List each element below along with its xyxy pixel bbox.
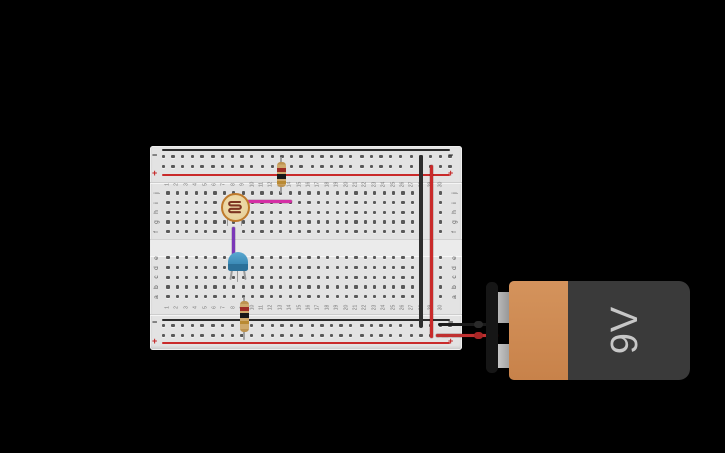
- breadboard-hole[interactable]: [204, 220, 207, 223]
- breadboard-hole[interactable]: [191, 334, 194, 337]
- breadboard-hole[interactable]: [231, 324, 234, 327]
- breadboard-hole[interactable]: [370, 155, 373, 158]
- breadboard-hole[interactable]: [289, 220, 292, 223]
- breadboard-hole[interactable]: [250, 165, 253, 168]
- breadboard-hole[interactable]: [326, 285, 329, 288]
- breadboard-hole[interactable]: [298, 295, 301, 298]
- breadboard-hole[interactable]: [221, 165, 224, 168]
- breadboard-hole[interactable]: [349, 155, 352, 158]
- breadboard-hole[interactable]: [232, 295, 235, 298]
- breadboard-hole[interactable]: [411, 295, 414, 298]
- breadboard-hole[interactable]: [411, 220, 414, 223]
- breadboard-hole[interactable]: [439, 211, 442, 214]
- breadboard-hole[interactable]: [410, 324, 413, 327]
- breadboard-hole[interactable]: [379, 334, 382, 337]
- breadboard-hole[interactable]: [307, 295, 310, 298]
- breadboard-hole[interactable]: [399, 155, 402, 158]
- breadboard-hole[interactable]: [410, 165, 413, 168]
- breadboard-hole[interactable]: [373, 230, 376, 233]
- breadboard-hole[interactable]: [251, 295, 254, 298]
- breadboard-hole[interactable]: [204, 191, 207, 194]
- breadboard-hole[interactable]: [439, 165, 442, 168]
- breadboard-hole[interactable]: [339, 334, 342, 337]
- breadboard-hole[interactable]: [317, 230, 320, 233]
- breadboard-hole[interactable]: [307, 191, 310, 194]
- breadboard-hole[interactable]: [279, 230, 282, 233]
- breadboard-hole[interactable]: [213, 266, 216, 269]
- breadboard-hole[interactable]: [399, 324, 402, 327]
- breadboard-hole[interactable]: [171, 165, 174, 168]
- breadboard-hole[interactable]: [166, 285, 169, 288]
- breadboard-hole[interactable]: [383, 211, 386, 214]
- breadboard-hole[interactable]: [364, 285, 367, 288]
- breadboard-hole[interactable]: [360, 155, 363, 158]
- breadboard-hole[interactable]: [166, 220, 169, 223]
- breadboard-hole[interactable]: [439, 220, 442, 223]
- breadboard-hole[interactable]: [290, 165, 293, 168]
- breadboard-hole[interactable]: [411, 256, 414, 259]
- breadboard-hole[interactable]: [373, 266, 376, 269]
- breadboard-hole[interactable]: [298, 211, 301, 214]
- breadboard-hole[interactable]: [360, 324, 363, 327]
- breadboard-hole[interactable]: [260, 220, 263, 223]
- breadboard-hole[interactable]: [181, 334, 184, 337]
- breadboard-hole[interactable]: [317, 211, 320, 214]
- breadboard-hole[interactable]: [270, 211, 273, 214]
- breadboard-hole[interactable]: [166, 191, 169, 194]
- breadboard-hole[interactable]: [345, 256, 348, 259]
- breadboard-hole[interactable]: [213, 276, 216, 279]
- breadboard-hole[interactable]: [195, 266, 198, 269]
- breadboard-hole[interactable]: [195, 276, 198, 279]
- breadboard-hole[interactable]: [251, 276, 254, 279]
- breadboard-hole[interactable]: [419, 334, 422, 337]
- breadboard-hole[interactable]: [392, 266, 395, 269]
- breadboard-hole[interactable]: [439, 285, 442, 288]
- breadboard-hole[interactable]: [279, 256, 282, 259]
- breadboard-hole[interactable]: [185, 256, 188, 259]
- breadboard-hole[interactable]: [191, 155, 194, 158]
- breadboard-hole[interactable]: [240, 155, 243, 158]
- breadboard-hole[interactable]: [364, 266, 367, 269]
- breadboard-hole[interactable]: [401, 256, 404, 259]
- breadboard-hole[interactable]: [200, 334, 203, 337]
- breadboard-hole[interactable]: [223, 295, 226, 298]
- breadboard-hole[interactable]: [401, 276, 404, 279]
- breadboard-hole[interactable]: [336, 276, 339, 279]
- breadboard-hole[interactable]: [336, 285, 339, 288]
- breadboard-hole[interactable]: [311, 155, 314, 158]
- breadboard-hole[interactable]: [298, 230, 301, 233]
- breadboard-hole[interactable]: [185, 211, 188, 214]
- breadboard-hole[interactable]: [223, 285, 226, 288]
- breadboard-hole[interactable]: [373, 191, 376, 194]
- breadboard-hole[interactable]: [411, 191, 414, 194]
- breadboard-hole[interactable]: [370, 324, 373, 327]
- breadboard-hole[interactable]: [181, 155, 184, 158]
- breadboard-hole[interactable]: [176, 285, 179, 288]
- breadboard-hole[interactable]: [299, 324, 302, 327]
- breadboard-hole[interactable]: [298, 256, 301, 259]
- breadboard-hole[interactable]: [290, 324, 293, 327]
- breadboard-hole[interactable]: [383, 285, 386, 288]
- breadboard-hole[interactable]: [383, 266, 386, 269]
- breadboard-hole[interactable]: [354, 266, 357, 269]
- breadboard-hole[interactable]: [213, 191, 216, 194]
- breadboard-hole[interactable]: [213, 285, 216, 288]
- breadboard-hole[interactable]: [240, 165, 243, 168]
- breadboard-hole[interactable]: [439, 191, 442, 194]
- breadboard-hole[interactable]: [289, 256, 292, 259]
- breadboard-hole[interactable]: [373, 276, 376, 279]
- breadboard-hole[interactable]: [251, 191, 254, 194]
- breadboard-hole[interactable]: [439, 266, 442, 269]
- breadboard-hole[interactable]: [345, 285, 348, 288]
- breadboard-hole[interactable]: [345, 230, 348, 233]
- breadboard-hole[interactable]: [185, 295, 188, 298]
- breadboard-hole[interactable]: [392, 230, 395, 233]
- breadboard-hole[interactable]: [213, 211, 216, 214]
- breadboard-hole[interactable]: [411, 276, 414, 279]
- breadboard-hole[interactable]: [260, 256, 263, 259]
- breadboard-hole[interactable]: [231, 334, 234, 337]
- breadboard-hole[interactable]: [307, 220, 310, 223]
- breadboard-hole[interactable]: [326, 256, 329, 259]
- breadboard-hole[interactable]: [162, 334, 165, 337]
- breadboard-hole[interactable]: [326, 295, 329, 298]
- breadboard-hole[interactable]: [299, 334, 302, 337]
- breadboard-hole[interactable]: [307, 256, 310, 259]
- breadboard-hole[interactable]: [279, 285, 282, 288]
- breadboard-hole[interactable]: [223, 230, 226, 233]
- breadboard-hole[interactable]: [223, 256, 226, 259]
- breadboard-hole[interactable]: [389, 324, 392, 327]
- breadboard-hole[interactable]: [401, 220, 404, 223]
- breadboard-hole[interactable]: [401, 201, 404, 204]
- breadboard-hole[interactable]: [392, 295, 395, 298]
- circuit-canvas[interactable]: 1122334455667788991010111112121313141415…: [0, 0, 725, 453]
- breadboard-hole[interactable]: [429, 155, 432, 158]
- breadboard-hole[interactable]: [439, 230, 442, 233]
- breadboard-hole[interactable]: [204, 266, 207, 269]
- breadboard-hole[interactable]: [383, 276, 386, 279]
- breadboard-hole[interactable]: [251, 220, 254, 223]
- breadboard-hole[interactable]: [392, 220, 395, 223]
- breadboard-hole[interactable]: [354, 211, 357, 214]
- breadboard-hole[interactable]: [279, 211, 282, 214]
- breadboard-hole[interactable]: [251, 256, 254, 259]
- breadboard-hole[interactable]: [171, 155, 174, 158]
- breadboard-hole[interactable]: [336, 191, 339, 194]
- breadboard-hole[interactable]: [373, 220, 376, 223]
- breadboard-hole[interactable]: [223, 276, 226, 279]
- breadboard-hole[interactable]: [251, 266, 254, 269]
- breadboard-hole[interactable]: [326, 266, 329, 269]
- breadboard-hole[interactable]: [339, 165, 342, 168]
- breadboard-hole[interactable]: [261, 324, 264, 327]
- breadboard-hole[interactable]: [383, 295, 386, 298]
- breadboard-hole[interactable]: [401, 191, 404, 194]
- breadboard-hole[interactable]: [223, 220, 226, 223]
- breadboard-hole[interactable]: [307, 266, 310, 269]
- breadboard-hole[interactable]: [401, 295, 404, 298]
- breadboard-hole[interactable]: [191, 165, 194, 168]
- breadboard-hole[interactable]: [204, 295, 207, 298]
- breadboard-hole[interactable]: [213, 256, 216, 259]
- breadboard-hole[interactable]: [176, 256, 179, 259]
- breadboard-hole[interactable]: [439, 295, 442, 298]
- breadboard-hole[interactable]: [261, 165, 264, 168]
- breadboard-hole[interactable]: [345, 201, 348, 204]
- breadboard-hole[interactable]: [383, 201, 386, 204]
- breadboard-hole[interactable]: [330, 155, 333, 158]
- breadboard-hole[interactable]: [166, 266, 169, 269]
- breadboard-hole[interactable]: [221, 334, 224, 337]
- breadboard-hole[interactable]: [290, 155, 293, 158]
- breadboard-hole[interactable]: [364, 276, 367, 279]
- breadboard-hole[interactable]: [326, 201, 329, 204]
- breadboard-hole[interactable]: [232, 285, 235, 288]
- breadboard-hole[interactable]: [204, 211, 207, 214]
- breadboard-hole[interactable]: [330, 324, 333, 327]
- breadboard-hole[interactable]: [270, 285, 273, 288]
- breadboard-hole[interactable]: [317, 201, 320, 204]
- wire-positive-rail-jumper[interactable]: [430, 165, 434, 338]
- breadboard-hole[interactable]: [326, 220, 329, 223]
- breadboard-hole[interactable]: [373, 211, 376, 214]
- breadboard-hole[interactable]: [354, 191, 357, 194]
- breadboard-hole[interactable]: [439, 201, 442, 204]
- breadboard-hole[interactable]: [364, 230, 367, 233]
- breadboard-hole[interactable]: [345, 220, 348, 223]
- breadboard-hole[interactable]: [279, 220, 282, 223]
- breadboard-hole[interactable]: [383, 220, 386, 223]
- breadboard-hole[interactable]: [354, 256, 357, 259]
- breadboard-hole[interactable]: [298, 201, 301, 204]
- breadboard-hole[interactable]: [176, 201, 179, 204]
- breadboard-hole[interactable]: [213, 220, 216, 223]
- breadboard-hole[interactable]: [360, 334, 363, 337]
- breadboard-hole[interactable]: [320, 334, 323, 337]
- breadboard-hole[interactable]: [260, 230, 263, 233]
- breadboard-hole[interactable]: [195, 230, 198, 233]
- breadboard-hole[interactable]: [298, 276, 301, 279]
- breadboard-hole[interactable]: [399, 165, 402, 168]
- breadboard-hole[interactable]: [389, 155, 392, 158]
- breadboard-hole[interactable]: [307, 276, 310, 279]
- breadboard-hole[interactable]: [411, 201, 414, 204]
- breadboard-hole[interactable]: [307, 230, 310, 233]
- breadboard-hole[interactable]: [307, 201, 310, 204]
- breadboard-hole[interactable]: [195, 256, 198, 259]
- breadboard-hole[interactable]: [162, 155, 165, 158]
- breadboard-hole[interactable]: [162, 165, 165, 168]
- breadboard-hole[interactable]: [289, 191, 292, 194]
- breadboard-hole[interactable]: [354, 230, 357, 233]
- breadboard-hole[interactable]: [260, 285, 263, 288]
- breadboard-hole[interactable]: [185, 276, 188, 279]
- breadboard-hole[interactable]: [211, 165, 214, 168]
- breadboard-hole[interactable]: [439, 276, 442, 279]
- breadboard-hole[interactable]: [191, 324, 194, 327]
- breadboard-hole[interactable]: [279, 295, 282, 298]
- breadboard-hole[interactable]: [349, 324, 352, 327]
- breadboard-hole[interactable]: [392, 201, 395, 204]
- breadboard-hole[interactable]: [439, 155, 442, 158]
- breadboard-hole[interactable]: [213, 230, 216, 233]
- breadboard-hole[interactable]: [411, 230, 414, 233]
- breadboard-hole[interactable]: [370, 334, 373, 337]
- breadboard-hole[interactable]: [260, 211, 263, 214]
- breadboard-hole[interactable]: [171, 334, 174, 337]
- breadboard-hole[interactable]: [383, 256, 386, 259]
- breadboard-hole[interactable]: [270, 230, 273, 233]
- breadboard-hole[interactable]: [320, 324, 323, 327]
- breadboard-hole[interactable]: [364, 256, 367, 259]
- breadboard-hole[interactable]: [298, 220, 301, 223]
- breadboard-hole[interactable]: [260, 276, 263, 279]
- breadboard-hole[interactable]: [345, 211, 348, 214]
- breadboard-hole[interactable]: [271, 165, 274, 168]
- breadboard-hole[interactable]: [354, 285, 357, 288]
- breadboard-hole[interactable]: [364, 211, 367, 214]
- breadboard-hole[interactable]: [211, 334, 214, 337]
- breadboard-hole[interactable]: [411, 285, 414, 288]
- breadboard-hole[interactable]: [211, 155, 214, 158]
- breadboard-hole[interactable]: [271, 155, 274, 158]
- breadboard-hole[interactable]: [317, 220, 320, 223]
- breadboard-hole[interactable]: [364, 295, 367, 298]
- breadboard-hole[interactable]: [270, 276, 273, 279]
- breadboard-hole[interactable]: [411, 266, 414, 269]
- breadboard-hole[interactable]: [261, 155, 264, 158]
- wire-ldr-output-pink[interactable]: [247, 200, 293, 204]
- breadboard-hole[interactable]: [176, 220, 179, 223]
- breadboard-hole[interactable]: [185, 266, 188, 269]
- breadboard-hole[interactable]: [166, 201, 169, 204]
- breadboard-hole[interactable]: [166, 276, 169, 279]
- breadboard-hole[interactable]: [176, 295, 179, 298]
- breadboard-hole[interactable]: [204, 230, 207, 233]
- breadboard-hole[interactable]: [364, 191, 367, 194]
- breadboard-hole[interactable]: [185, 220, 188, 223]
- breadboard-hole[interactable]: [364, 201, 367, 204]
- breadboard-hole[interactable]: [439, 256, 442, 259]
- breadboard-hole[interactable]: [171, 324, 174, 327]
- breadboard-hole[interactable]: [336, 295, 339, 298]
- breadboard-hole[interactable]: [279, 276, 282, 279]
- breadboard-hole[interactable]: [185, 201, 188, 204]
- breadboard-hole[interactable]: [204, 276, 207, 279]
- breadboard-hole[interactable]: [354, 276, 357, 279]
- breadboard-hole[interactable]: [370, 165, 373, 168]
- breadboard-hole[interactable]: [392, 211, 395, 214]
- breadboard-hole[interactable]: [250, 334, 253, 337]
- breadboard-hole[interactable]: [251, 285, 254, 288]
- breadboard-hole[interactable]: [289, 285, 292, 288]
- breadboard-hole[interactable]: [299, 165, 302, 168]
- breadboard-hole[interactable]: [232, 276, 235, 279]
- breadboard-hole[interactable]: [181, 324, 184, 327]
- breadboard-hole[interactable]: [260, 266, 263, 269]
- breadboard-hole[interactable]: [354, 295, 357, 298]
- breadboard-hole[interactable]: [410, 155, 413, 158]
- breadboard-hole[interactable]: [326, 191, 329, 194]
- breadboard-hole[interactable]: [373, 201, 376, 204]
- breadboard-hole[interactable]: [339, 155, 342, 158]
- breadboard-hole[interactable]: [251, 211, 254, 214]
- breadboard-hole[interactable]: [317, 191, 320, 194]
- breadboard-hole[interactable]: [213, 295, 216, 298]
- breadboard-hole[interactable]: [360, 165, 363, 168]
- breadboard-hole[interactable]: [336, 256, 339, 259]
- breadboard-hole[interactable]: [373, 285, 376, 288]
- breadboard-hole[interactable]: [389, 165, 392, 168]
- breadboard-hole[interactable]: [317, 285, 320, 288]
- breadboard-hole[interactable]: [339, 324, 342, 327]
- breadboard-hole[interactable]: [221, 155, 224, 158]
- breadboard-hole[interactable]: [354, 201, 357, 204]
- breadboard-hole[interactable]: [231, 155, 234, 158]
- breadboard-hole[interactable]: [336, 220, 339, 223]
- breadboard-hole[interactable]: [383, 230, 386, 233]
- breadboard-hole[interactable]: [401, 266, 404, 269]
- breadboard-hole[interactable]: [373, 295, 376, 298]
- breadboard-hole[interactable]: [185, 285, 188, 288]
- breadboard-hole[interactable]: [401, 230, 404, 233]
- breadboard-hole[interactable]: [195, 295, 198, 298]
- breadboard-hole[interactable]: [195, 191, 198, 194]
- breadboard-hole[interactable]: [311, 324, 314, 327]
- breadboard-hole[interactable]: [383, 191, 386, 194]
- breadboard-hole[interactable]: [242, 285, 245, 288]
- breadboard-hole[interactable]: [162, 324, 165, 327]
- breadboard-hole[interactable]: [204, 256, 207, 259]
- breadboard-hole[interactable]: [289, 266, 292, 269]
- wire-negative-rail-jumper[interactable]: [419, 155, 423, 328]
- breadboard-hole[interactable]: [326, 211, 329, 214]
- breadboard-hole[interactable]: [221, 324, 224, 327]
- breadboard-hole[interactable]: [251, 230, 254, 233]
- breadboard-hole[interactable]: [195, 201, 198, 204]
- breadboard-hole[interactable]: [311, 165, 314, 168]
- breadboard-hole[interactable]: [364, 220, 367, 223]
- breadboard-hole[interactable]: [213, 201, 216, 204]
- breadboard-hole[interactable]: [320, 155, 323, 158]
- breadboard-hole[interactable]: [271, 324, 274, 327]
- breadboard-hole[interactable]: [176, 230, 179, 233]
- breadboard-hole[interactable]: [200, 155, 203, 158]
- breadboard-hole[interactable]: [345, 266, 348, 269]
- breadboard-hole[interactable]: [176, 211, 179, 214]
- breadboard-hole[interactable]: [330, 334, 333, 337]
- breadboard-hole[interactable]: [392, 191, 395, 194]
- breadboard-hole[interactable]: [311, 334, 314, 337]
- breadboard-hole[interactable]: [307, 211, 310, 214]
- breadboard-hole[interactable]: [392, 276, 395, 279]
- breadboard-hole[interactable]: [242, 230, 245, 233]
- breadboard-hole[interactable]: [200, 324, 203, 327]
- breadboard-hole[interactable]: [345, 276, 348, 279]
- breadboard-hole[interactable]: [231, 165, 234, 168]
- breadboard-hole[interactable]: [379, 324, 382, 327]
- breadboard-hole[interactable]: [389, 334, 392, 337]
- breadboard-hole[interactable]: [195, 285, 198, 288]
- breadboard-hole[interactable]: [250, 324, 253, 327]
- breadboard-hole[interactable]: [298, 191, 301, 194]
- breadboard-hole[interactable]: [330, 165, 333, 168]
- breadboard-hole[interactable]: [354, 220, 357, 223]
